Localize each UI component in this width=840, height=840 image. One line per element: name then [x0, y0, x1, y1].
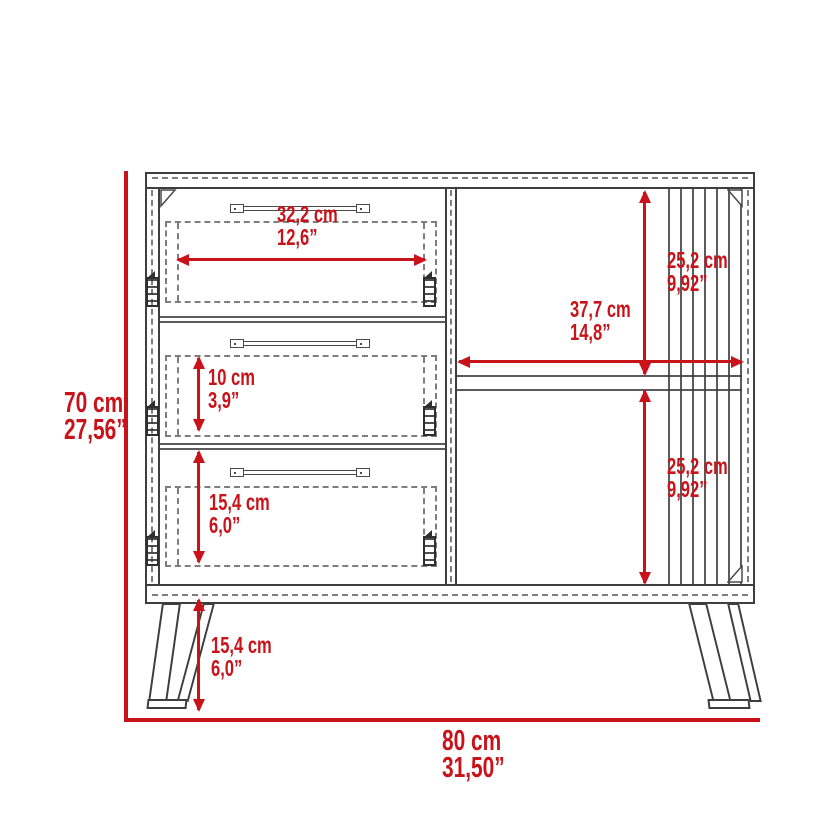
handle-bar	[243, 341, 357, 346]
dim-arrow-bottom-drawer-height	[197, 452, 200, 562]
dim-inch: 27,56”	[64, 417, 127, 444]
drawer-separator-1b	[160, 321, 445, 323]
dim-cm: 15,4 cm	[209, 491, 270, 514]
drawer-3-slide-right	[423, 536, 436, 566]
dim-cm: 37,7 cm	[570, 298, 631, 321]
left-wall-hidden-edge	[151, 190, 153, 582]
dim-cm: 70 cm	[64, 390, 127, 417]
corner-bracket-top-left	[160, 189, 177, 213]
bottom-panel-hidden-edge	[152, 594, 748, 596]
slat-line	[740, 189, 742, 584]
dim-inch: 6,0”	[209, 514, 270, 537]
dim-label-right-upper-height: 25,2 cm 9,92”	[667, 249, 728, 295]
dim-arrow-middle-drawer-height	[197, 358, 200, 430]
handle-cap	[230, 468, 244, 477]
drawer-1-slide-left	[146, 277, 159, 307]
dim-label-overall-height: 70 cm 27,56”	[64, 390, 127, 444]
top-panel-bottom-edge	[147, 187, 753, 189]
leg-foot-left	[146, 699, 187, 709]
dim-arrow-right-compartment-width	[459, 360, 742, 363]
drawer-3-box	[165, 486, 437, 567]
dim-cm: 25,2 cm	[667, 455, 728, 478]
drawer-2-slide-right	[423, 406, 436, 436]
shelf-bottom-edge	[457, 389, 742, 391]
drawer-2-slide-left	[146, 406, 159, 436]
dim-label-right-lower-height: 25,2 cm 9,92”	[667, 455, 728, 501]
handle-bar	[243, 470, 357, 475]
handle-cap	[230, 204, 244, 213]
left-wall-inner-edge	[158, 188, 160, 584]
dim-label-bottom-drawer-height: 15,4 cm 6,0”	[209, 491, 270, 537]
dimension-diagram: 32,2 cm 12,6” 10 cm 3,9” 15,4 cm 6,0” 15…	[0, 0, 840, 840]
drawer-1-slide-right	[423, 277, 436, 307]
handle-cap	[356, 468, 370, 477]
dim-label-overall-width: 80 cm 31,50”	[442, 728, 505, 782]
leg-rear-left	[176, 603, 215, 702]
dim-arrow-leg-height	[197, 600, 200, 710]
dim-inch: 6,0”	[211, 657, 272, 680]
dim-inch: 12,6”	[277, 226, 338, 249]
handle-cap	[356, 204, 370, 213]
drawer-separator-2	[160, 443, 445, 445]
leg-front-left	[148, 603, 181, 704]
divider-right-edge	[455, 188, 457, 584]
dim-inch: 31,50”	[442, 755, 505, 782]
corner-bracket-top-right	[727, 189, 744, 213]
dim-label-top-drawer-width: 32,2 cm 12,6”	[277, 203, 338, 249]
divider-left-edge	[445, 188, 447, 584]
handle-cap	[230, 339, 244, 348]
dim-label-middle-drawer-height: 10 cm 3,9”	[208, 366, 255, 412]
overall-height-extent-line	[124, 171, 128, 722]
dim-cm: 25,2 cm	[667, 249, 728, 272]
drawer-3-box-side	[177, 488, 179, 565]
dim-arrow-top-drawer-width	[178, 258, 425, 261]
drawer-2-handle	[230, 339, 370, 348]
slat-line	[728, 189, 730, 584]
dim-cm: 80 cm	[442, 728, 505, 755]
drawer-separator-1	[160, 316, 445, 318]
leg-rear-right	[727, 603, 762, 702]
drawer-2-box	[165, 355, 437, 437]
dim-inch: 3,9”	[208, 389, 255, 412]
drawer-2-box-side	[177, 357, 179, 435]
dim-arrow-right-lower-height	[643, 391, 646, 583]
bottom-panel-top-edge	[147, 584, 753, 586]
drawer-3-slide-left	[146, 536, 159, 566]
dim-cm: 15,4 cm	[211, 634, 272, 657]
dim-label-right-compartment-width: 37,7 cm 14,8”	[570, 298, 631, 344]
dim-inch: 9,92”	[667, 478, 728, 501]
drawer-3-handle	[230, 468, 370, 477]
handle-cap	[356, 339, 370, 348]
right-wall-hidden-edge	[747, 190, 749, 582]
dim-cm: 32,2 cm	[277, 203, 338, 226]
dim-label-leg-height: 15,4 cm 6,0”	[211, 634, 272, 680]
top-panel-hidden-edge	[152, 177, 748, 179]
divider-hidden-edge	[450, 190, 452, 582]
dim-arrow-right-upper-height	[643, 192, 646, 374]
dim-inch: 9,92”	[667, 272, 728, 295]
leg-foot-right	[707, 699, 750, 709]
shelf-top-edge	[457, 375, 742, 377]
dim-inch: 14,8”	[570, 321, 631, 344]
dim-cm: 10 cm	[208, 366, 255, 389]
corner-bracket-bottom-right	[727, 565, 744, 589]
leg-front-right	[688, 603, 732, 704]
overall-width-extent-line	[124, 718, 760, 722]
